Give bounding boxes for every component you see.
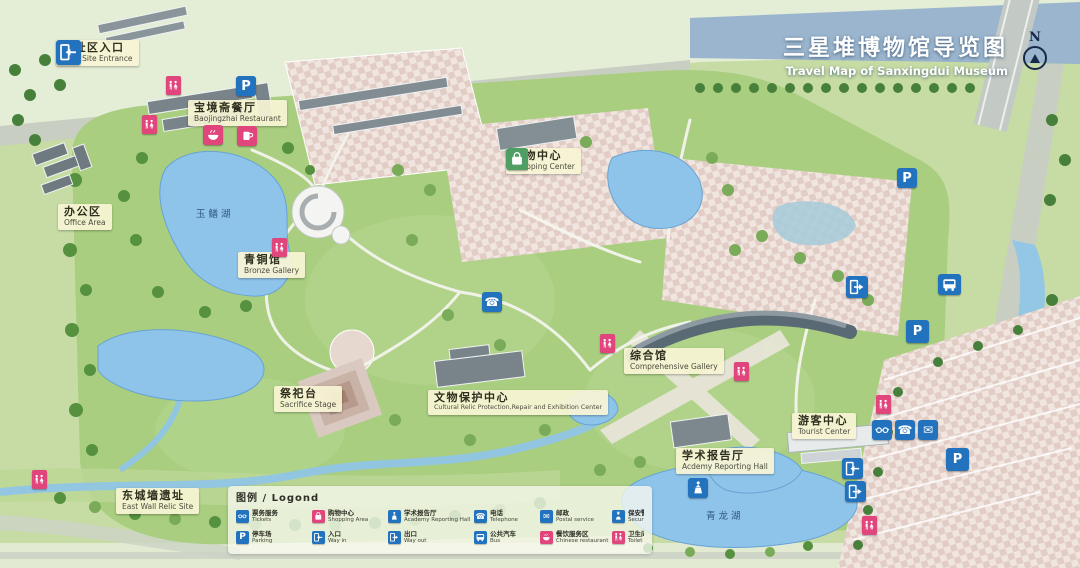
lake-name-yushan: 玉鳝湖 xyxy=(196,206,234,220)
lake-name-qinglong: 青龙湖 xyxy=(706,508,744,522)
toilet-icon xyxy=(166,76,181,95)
label-baojingzhai-restaurant: 宝境斋餐厅Baojingzhai Restaurant xyxy=(188,100,287,126)
way-out-icon xyxy=(845,481,866,502)
north-label: N xyxy=(1020,30,1050,45)
way-in-icon xyxy=(56,40,81,65)
parking-icon: P xyxy=(906,320,929,343)
shopping-icon xyxy=(506,148,528,170)
label-comprehensive-gallery: 综合馆Comprehensive Gallery xyxy=(624,348,724,374)
way-out-icon xyxy=(846,276,868,298)
security-icon xyxy=(612,510,625,523)
compass: N xyxy=(1020,30,1050,70)
parking-icon: P xyxy=(897,168,917,188)
way-out-icon xyxy=(388,531,401,544)
drinks-icon xyxy=(237,126,257,146)
legend-item-telephone: ☎ 电话Telephone xyxy=(474,506,540,527)
telephone-icon: ☎ xyxy=(474,510,487,523)
toilet-icon xyxy=(734,362,749,381)
map-title-zh: 三星堆博物馆导览图 xyxy=(783,30,1008,62)
academy-hall-icon xyxy=(388,510,401,523)
label-tourist-center: 游客中心Tourist Center xyxy=(792,413,856,439)
shopping-icon xyxy=(312,510,325,523)
parking-icon: P xyxy=(236,531,249,544)
bus-stop-icon xyxy=(938,274,961,295)
toilet-icon xyxy=(32,470,47,489)
mail-icon: ✉ xyxy=(918,420,938,440)
legend-item-way-out: 出口Way out xyxy=(388,527,474,548)
toilet-icon xyxy=(876,395,891,414)
tickets-icon xyxy=(872,420,892,440)
legend-item-parking: P 停车场Parking xyxy=(236,527,312,548)
restaurant-icon xyxy=(540,531,553,544)
label-academy-reporting-hall: 学术报告厅Acdemy Reporting Hall xyxy=(676,448,774,474)
map-illustration xyxy=(0,0,1080,568)
legend-item-tickets: 票务服务Tickets xyxy=(236,506,312,527)
toilet-icon xyxy=(600,334,615,353)
label-cultural-relic-protection-center: 文物保护中心Cultural Relic Protection,Repair a… xyxy=(428,390,608,415)
mail-icon: ✉ xyxy=(540,510,553,523)
legend-item-shopping: 购物中心Shopping Area xyxy=(312,506,388,527)
relic-entrance-group: 遗址区入口Relic Site Entrance xyxy=(56,40,139,66)
academy-hall-icon xyxy=(688,478,708,498)
legend-item-way-in: 入口Way in xyxy=(312,527,388,548)
way-in-icon xyxy=(842,458,863,479)
label-sacrifice-stage: 祭祀台Sacrifice Stage xyxy=(274,386,342,412)
legend-item-security: 保安警务Security Police xyxy=(612,506,644,527)
telephone-icon: ☎ xyxy=(895,420,915,440)
shopping-center-group: 购物中心Shopping Center xyxy=(506,148,581,174)
parking-icon: P xyxy=(236,76,256,96)
map-title: 三星堆博物馆导览图 Travel Map of Sanxingdui Museu… xyxy=(783,30,1008,78)
toilet-icon xyxy=(612,531,625,544)
sanxingdui-map: 三星堆博物馆导览图 Travel Map of Sanxingdui Museu… xyxy=(0,0,1080,568)
parking-icon: P xyxy=(946,448,969,471)
telephone-icon: ☎ xyxy=(482,292,502,312)
legend-panel: 图例 / Logond 票务服务Tickets 购物中心Shopping Are… xyxy=(228,486,652,554)
way-in-icon xyxy=(312,531,325,544)
north-arrow-icon xyxy=(1023,46,1047,70)
tickets-icon xyxy=(236,510,249,523)
legend-item-toilet: 卫生间Toilet xyxy=(612,527,644,548)
label-east-wall-relic-site: 东城墙遗址East Wall Relic Site xyxy=(116,488,199,514)
toilet-icon xyxy=(142,115,157,134)
legend-item-bus: 公共汽车Bus xyxy=(474,527,540,548)
bus-icon xyxy=(474,531,487,544)
map-title-en: Travel Map of Sanxingdui Museum xyxy=(783,64,1008,78)
legend-item-academy-hall: 学术报告厅Academy Reporting Hall xyxy=(388,506,474,527)
restaurant-icon xyxy=(203,125,223,145)
legend-item-postal: ✉ 邮政Postal service xyxy=(540,506,612,527)
legend-title: 图例 / Logond xyxy=(236,489,644,504)
legend-item-restaurant: 餐饮服务区Chinese restaurant xyxy=(540,527,612,548)
toilet-icon xyxy=(272,238,287,257)
toilet-icon xyxy=(862,516,877,535)
label-office-area: 办公区Office Area xyxy=(58,204,112,230)
